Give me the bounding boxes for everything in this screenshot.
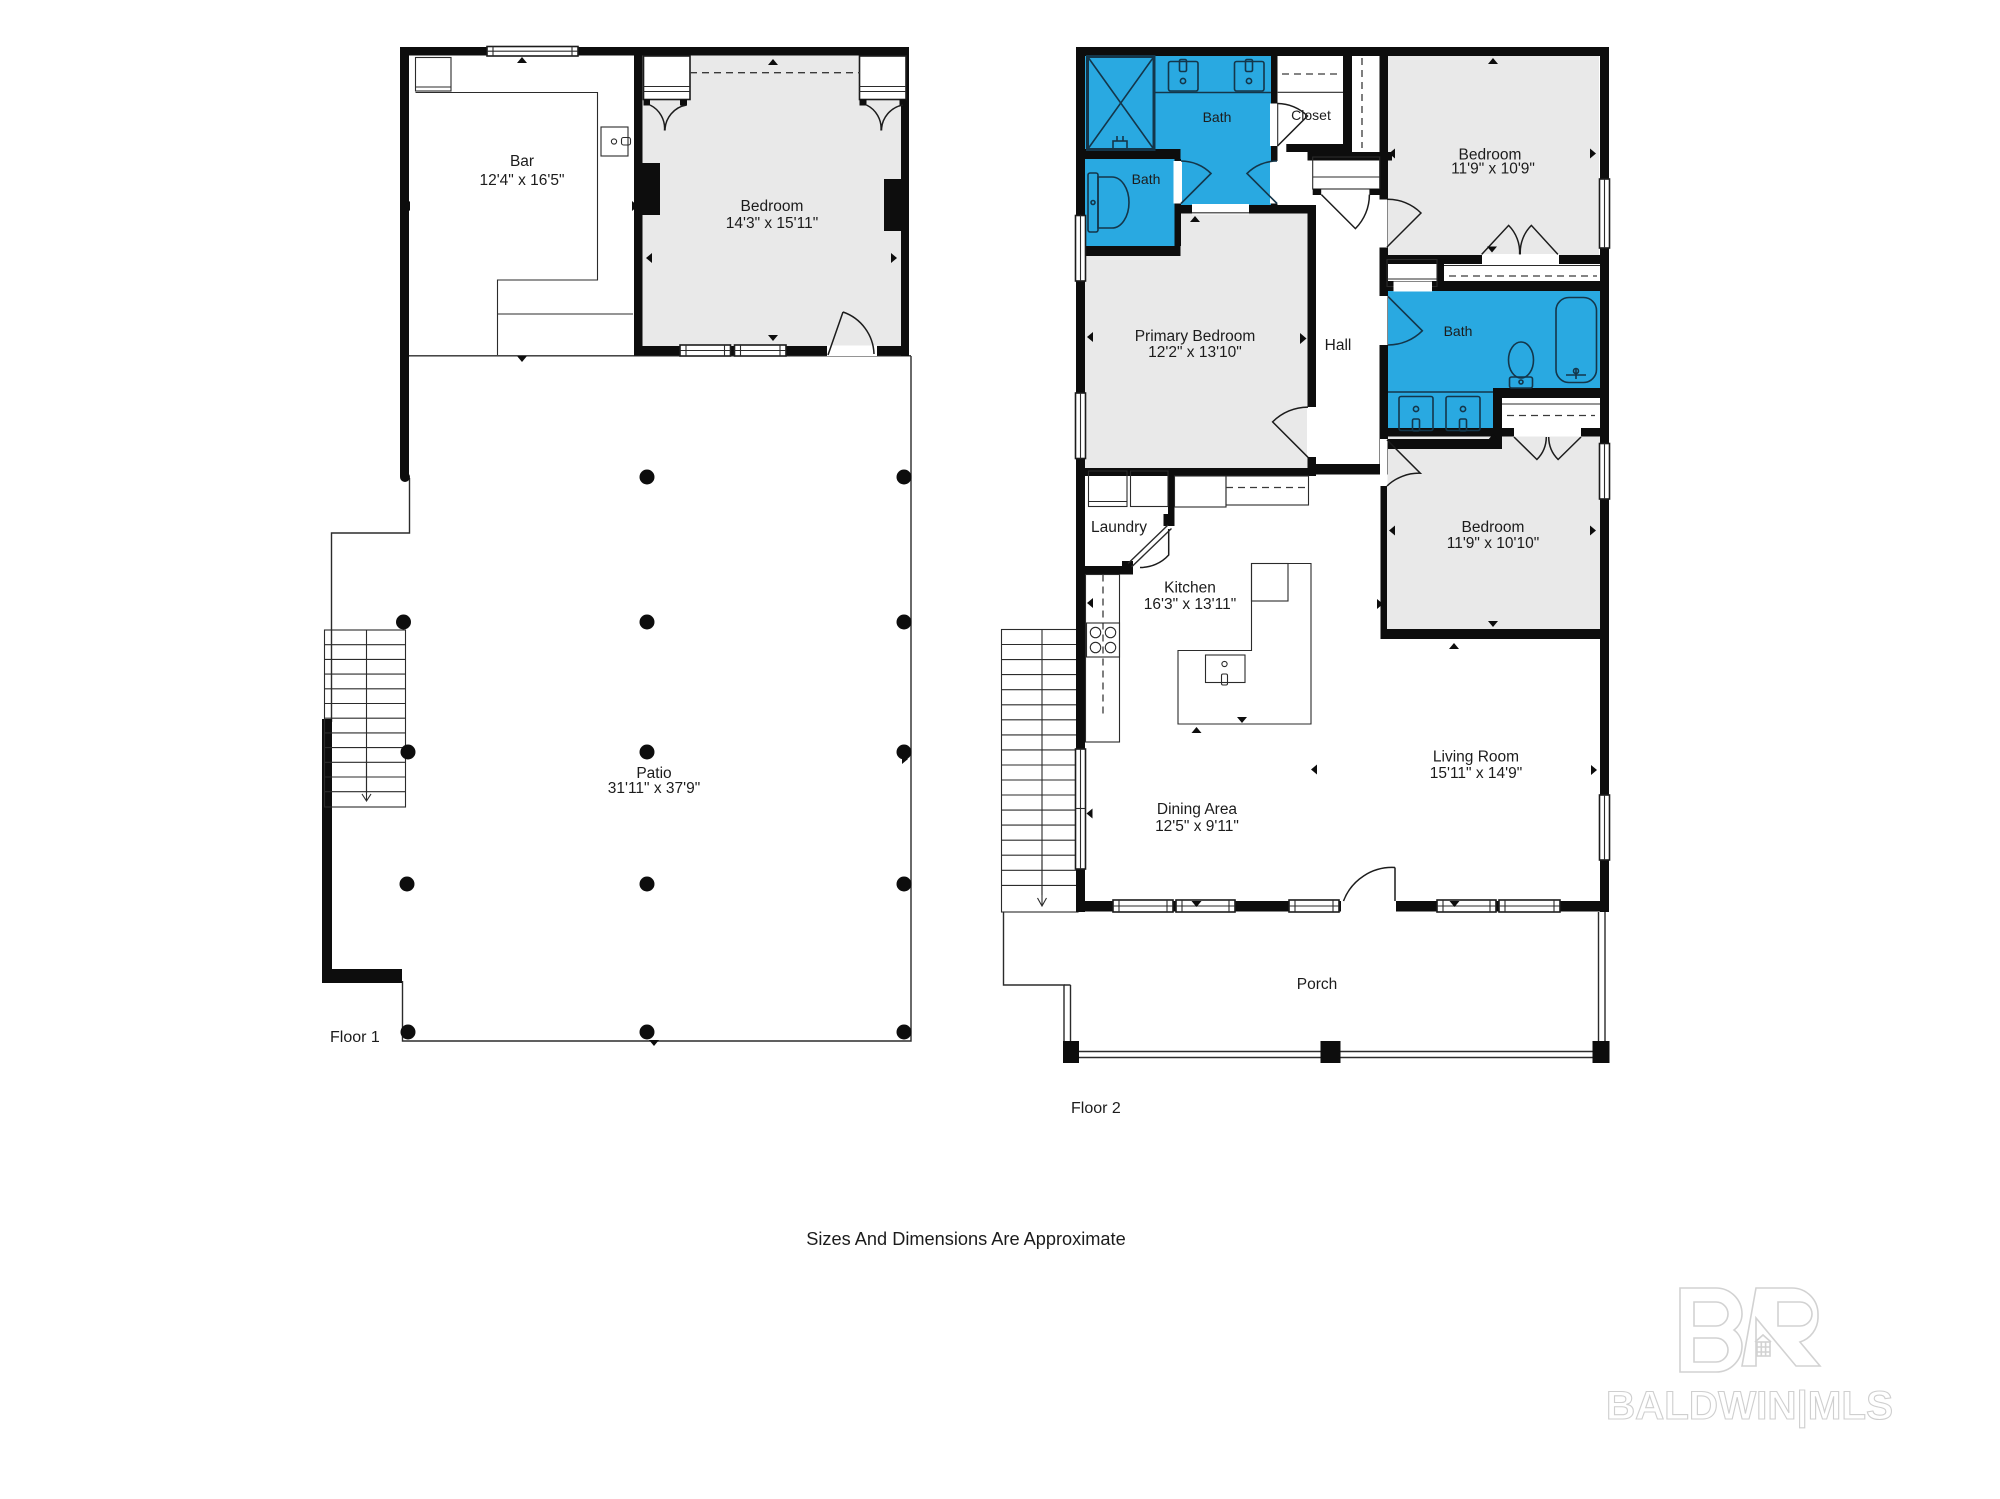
svg-text:Dining Area: Dining Area bbox=[1157, 801, 1238, 818]
svg-text:11'9" x 10'9": 11'9" x 10'9" bbox=[1451, 161, 1535, 178]
svg-text:Primary Bedroom: Primary Bedroom bbox=[1135, 328, 1256, 345]
svg-text:Bath: Bath bbox=[1132, 171, 1161, 187]
svg-text:Hall: Hall bbox=[1325, 337, 1352, 354]
svg-text:12'5" x 9'11": 12'5" x 9'11" bbox=[1155, 818, 1239, 835]
svg-text:Bedroom: Bedroom bbox=[741, 198, 804, 215]
svg-text:Bath: Bath bbox=[1444, 323, 1473, 339]
svg-text:12'4" x 16'5": 12'4" x 16'5" bbox=[479, 172, 564, 189]
svg-text:Closet: Closet bbox=[1291, 107, 1331, 123]
svg-text:11'9" x 10'10": 11'9" x 10'10" bbox=[1447, 535, 1539, 552]
svg-text:14'3" x 15'11": 14'3" x 15'11" bbox=[726, 215, 818, 232]
svg-text:31'11" x 37'9": 31'11" x 37'9" bbox=[608, 780, 700, 797]
svg-text:Kitchen: Kitchen bbox=[1164, 580, 1216, 597]
svg-text:Sizes And Dimensions Are Appro: Sizes And Dimensions Are Approximate bbox=[806, 1229, 1125, 1249]
svg-text:Porch: Porch bbox=[1297, 976, 1338, 993]
svg-text:12'2" x 13'10": 12'2" x 13'10" bbox=[1148, 344, 1242, 361]
svg-text:Bedroom: Bedroom bbox=[1462, 519, 1525, 536]
svg-text:Laundry: Laundry bbox=[1091, 519, 1147, 536]
svg-text:15'11" x 14'9": 15'11" x 14'9" bbox=[1430, 765, 1522, 782]
svg-text:16'3" x 13'11": 16'3" x 13'11" bbox=[1144, 596, 1236, 613]
svg-text:Bar: Bar bbox=[510, 153, 534, 170]
svg-text:BALDWIN|MLS: BALDWIN|MLS bbox=[1606, 1384, 1893, 1428]
svg-text:Living Room: Living Room bbox=[1433, 749, 1519, 766]
svg-text:Bath: Bath bbox=[1203, 109, 1232, 125]
svg-text:Floor 2: Floor 2 bbox=[1071, 1100, 1121, 1117]
svg-text:Floor 1: Floor 1 bbox=[330, 1029, 380, 1046]
